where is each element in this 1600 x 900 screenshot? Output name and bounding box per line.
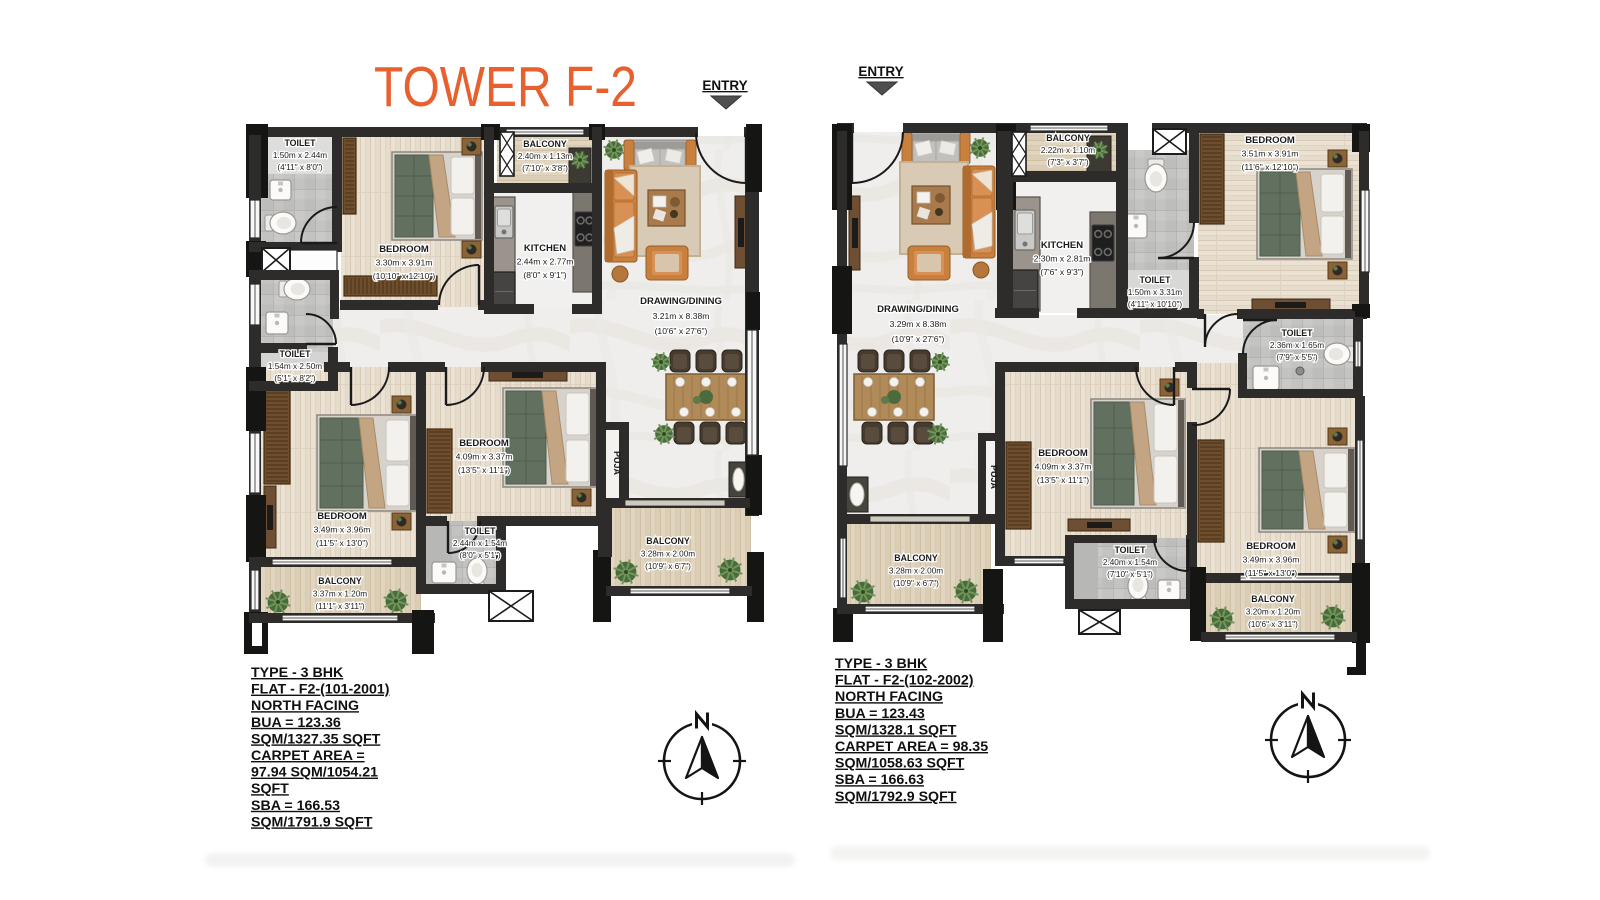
svg-text:SBA = 166.63: SBA = 166.63 bbox=[835, 772, 924, 788]
svg-text:3.20m x 1.20m: 3.20m x 1.20m bbox=[1246, 608, 1300, 617]
svg-text:TOILET: TOILET bbox=[464, 526, 496, 536]
svg-text:2.30m x 2.81m: 2.30m x 2.81m bbox=[1034, 254, 1091, 264]
svg-text:PUJA: PUJA bbox=[989, 465, 999, 490]
svg-text:2.40m x 1.13m: 2.40m x 1.13m bbox=[518, 152, 572, 161]
svg-text:ENTRY: ENTRY bbox=[702, 78, 747, 93]
svg-text:(10'6" x 3'11"): (10'6" x 3'11") bbox=[1248, 620, 1298, 629]
svg-text:BEDROOM: BEDROOM bbox=[1246, 541, 1296, 552]
svg-text:(10'10" x 12'10"): (10'10" x 12'10") bbox=[373, 271, 436, 281]
svg-text:3.30m x 3.91m: 3.30m x 3.91m bbox=[376, 258, 433, 268]
svg-text:4.09m x 3.37m: 4.09m x 3.37m bbox=[456, 452, 513, 462]
svg-text:(5'1" x 8'2"): (5'1" x 8'2") bbox=[274, 374, 316, 383]
svg-text:(8'0" x 9'1"): (8'0" x 9'1") bbox=[523, 270, 566, 280]
svg-text:(7'9" x 5'5"): (7'9" x 5'5") bbox=[1276, 353, 1318, 362]
svg-text:3.21m x 8.38m: 3.21m x 8.38m bbox=[653, 311, 710, 321]
svg-text:4.09m x 3.37m: 4.09m x 3.37m bbox=[1035, 462, 1092, 472]
svg-text:1.50m x 2.44m: 1.50m x 2.44m bbox=[273, 151, 327, 160]
svg-text:2.44m x 2.77m: 2.44m x 2.77m bbox=[517, 257, 574, 267]
svg-text:(11'6" x 12'10"): (11'6" x 12'10") bbox=[1242, 162, 1299, 172]
svg-text:3.51m x 3.91m: 3.51m x 3.91m bbox=[1242, 149, 1299, 159]
svg-text:BUA = 123.36: BUA = 123.36 bbox=[251, 715, 341, 731]
svg-text:2.44m x 1.54m: 2.44m x 1.54m bbox=[453, 539, 507, 548]
svg-text:2.36m x 1.65m: 2.36m x 1.65m bbox=[1270, 341, 1324, 350]
svg-text:BEDROOM: BEDROOM bbox=[317, 511, 367, 522]
svg-text:TOILET: TOILET bbox=[284, 138, 316, 148]
svg-text:1.50m x 3.31m: 1.50m x 3.31m bbox=[1128, 288, 1182, 297]
svg-text:CARPET AREA =: CARPET AREA = bbox=[251, 748, 365, 764]
svg-text:SQFT: SQFT bbox=[251, 781, 289, 797]
svg-text:BALCONY: BALCONY bbox=[1251, 594, 1295, 604]
svg-text:(11'5" x 13'0"): (11'5" x 13'0") bbox=[316, 538, 368, 548]
svg-text:(13'5" x 11'1"): (13'5" x 11'1") bbox=[1037, 475, 1089, 485]
svg-text:3.28m x 2.00m: 3.28m x 2.00m bbox=[641, 550, 695, 559]
svg-text:BEDROOM: BEDROOM bbox=[1245, 135, 1295, 146]
svg-text:(11'1" x 3'11"): (11'1" x 3'11") bbox=[315, 602, 364, 611]
svg-text:(7'10" x 5'1"): (7'10" x 5'1") bbox=[1107, 570, 1153, 579]
svg-text:PUJA: PUJA bbox=[612, 451, 622, 476]
svg-text:(13'5" x 11'1"): (13'5" x 11'1") bbox=[458, 465, 510, 475]
svg-text:DRAWING/DINING: DRAWING/DINING bbox=[640, 296, 722, 307]
svg-text:SQM/1792.9 SQFT: SQM/1792.9 SQFT bbox=[835, 789, 957, 805]
svg-text:(10'9" x 6'7"): (10'9" x 6'7") bbox=[893, 579, 939, 588]
svg-text:BALCONY: BALCONY bbox=[318, 576, 362, 586]
svg-text:ENTRY: ENTRY bbox=[858, 64, 903, 79]
svg-text:TYPE - 3 BHK: TYPE - 3 BHK bbox=[835, 656, 928, 672]
svg-text:TOWER F-2: TOWER F-2 bbox=[374, 55, 637, 119]
svg-text:(10'9" x 6'7"): (10'9" x 6'7") bbox=[645, 562, 691, 571]
svg-text:BEDROOM: BEDROOM bbox=[1038, 448, 1088, 459]
svg-text:NORTH FACING: NORTH FACING bbox=[251, 698, 359, 714]
svg-text:(10'6" x 27'6"): (10'6" x 27'6") bbox=[655, 326, 708, 336]
svg-text:(8'0" x 5'1"): (8'0" x 5'1") bbox=[459, 551, 501, 560]
svg-text:(7'3" x 3'7"): (7'3" x 3'7") bbox=[1047, 158, 1089, 167]
svg-text:(7'6" x 9'3"): (7'6" x 9'3") bbox=[1040, 267, 1083, 277]
svg-text:CARPET AREA = 98.35: CARPET AREA = 98.35 bbox=[835, 739, 988, 755]
svg-text:TOILET: TOILET bbox=[1114, 545, 1146, 555]
svg-text:SBA = 166.53: SBA = 166.53 bbox=[251, 798, 340, 814]
svg-text:DRAWING/DINING: DRAWING/DINING bbox=[877, 304, 959, 315]
svg-text:3.49m x 3.96m: 3.49m x 3.96m bbox=[1243, 555, 1300, 565]
svg-text:KITCHEN: KITCHEN bbox=[1041, 240, 1083, 251]
svg-text:2.22m x 1.10m: 2.22m x 1.10m bbox=[1041, 146, 1095, 155]
svg-text:TOILET: TOILET bbox=[279, 349, 311, 359]
svg-text:3.28m x 2.00m: 3.28m x 2.00m bbox=[889, 567, 943, 576]
svg-text:FLAT - F2-(102-2002): FLAT - F2-(102-2002) bbox=[835, 673, 974, 689]
svg-text:SQM/1327.35 SQFT: SQM/1327.35 SQFT bbox=[251, 731, 381, 747]
svg-text:SQM/1328.1 SQFT: SQM/1328.1 SQFT bbox=[835, 722, 957, 738]
svg-text:(11'5" x 13'0"): (11'5" x 13'0") bbox=[1245, 568, 1297, 578]
svg-text:(10'9" x 27'6"): (10'9" x 27'6") bbox=[892, 334, 945, 344]
svg-text:BALCONY: BALCONY bbox=[646, 536, 690, 546]
svg-text:FLAT - F2-(101-2001): FLAT - F2-(101-2001) bbox=[251, 682, 390, 698]
svg-text:TOILET: TOILET bbox=[1139, 275, 1171, 285]
svg-text:BALCONY: BALCONY bbox=[1046, 133, 1090, 143]
svg-text:BALCONY: BALCONY bbox=[523, 139, 567, 149]
svg-text:BEDROOM: BEDROOM bbox=[459, 438, 509, 449]
svg-text:(7'10" x 3'8"): (7'10" x 3'8") bbox=[522, 164, 568, 173]
svg-text:3.49m x 3.96m: 3.49m x 3.96m bbox=[314, 525, 371, 535]
svg-text:(4'11" x 10'10"): (4'11" x 10'10") bbox=[1128, 300, 1183, 309]
svg-text:TYPE - 3 BHK: TYPE - 3 BHK bbox=[251, 665, 344, 681]
svg-text:BUA = 123.43: BUA = 123.43 bbox=[835, 706, 925, 722]
svg-text:SQM/1058.63 SQFT: SQM/1058.63 SQFT bbox=[835, 756, 965, 772]
svg-text:NORTH FACING: NORTH FACING bbox=[835, 689, 943, 705]
svg-text:BEDROOM: BEDROOM bbox=[379, 244, 429, 255]
svg-text:2.40m x 1.54m: 2.40m x 1.54m bbox=[1103, 558, 1157, 567]
svg-text:1.54m x 2.50m: 1.54m x 2.50m bbox=[268, 362, 322, 371]
svg-text:97.94 SQM/1054.21: 97.94 SQM/1054.21 bbox=[251, 765, 378, 781]
svg-text:SQM/1791.9 SQFT: SQM/1791.9 SQFT bbox=[251, 814, 373, 830]
svg-text:BALCONY: BALCONY bbox=[894, 553, 938, 563]
svg-text:3.37m x 1.20m: 3.37m x 1.20m bbox=[313, 590, 367, 599]
svg-text:3.29m x 8.38m: 3.29m x 8.38m bbox=[890, 319, 947, 329]
svg-text:KITCHEN: KITCHEN bbox=[524, 243, 566, 254]
svg-text:TOILET: TOILET bbox=[1281, 328, 1313, 338]
svg-text:(4'11" x 8'0"): (4'11" x 8'0") bbox=[277, 163, 322, 172]
